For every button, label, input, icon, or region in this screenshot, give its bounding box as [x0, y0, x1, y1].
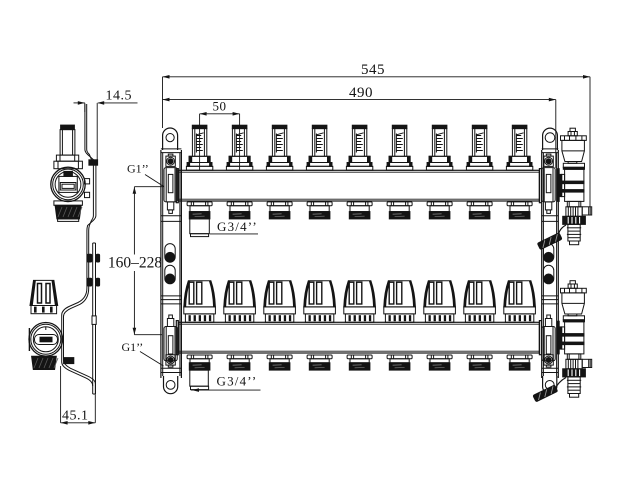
svg-text:50: 50 [213, 99, 227, 114]
svg-text:G3/4’’: G3/4’’ [217, 219, 258, 234]
svg-text:G1’’: G1’’ [122, 340, 144, 354]
svg-text:545: 545 [361, 62, 385, 78]
svg-text:G1’’: G1’’ [127, 162, 149, 176]
svg-text:45.1: 45.1 [62, 409, 89, 424]
svg-text:490: 490 [349, 85, 373, 101]
svg-text:14.5: 14.5 [106, 89, 133, 104]
svg-text:G3/4’’: G3/4’’ [217, 374, 258, 389]
svg-text:160–228: 160–228 [108, 255, 163, 272]
